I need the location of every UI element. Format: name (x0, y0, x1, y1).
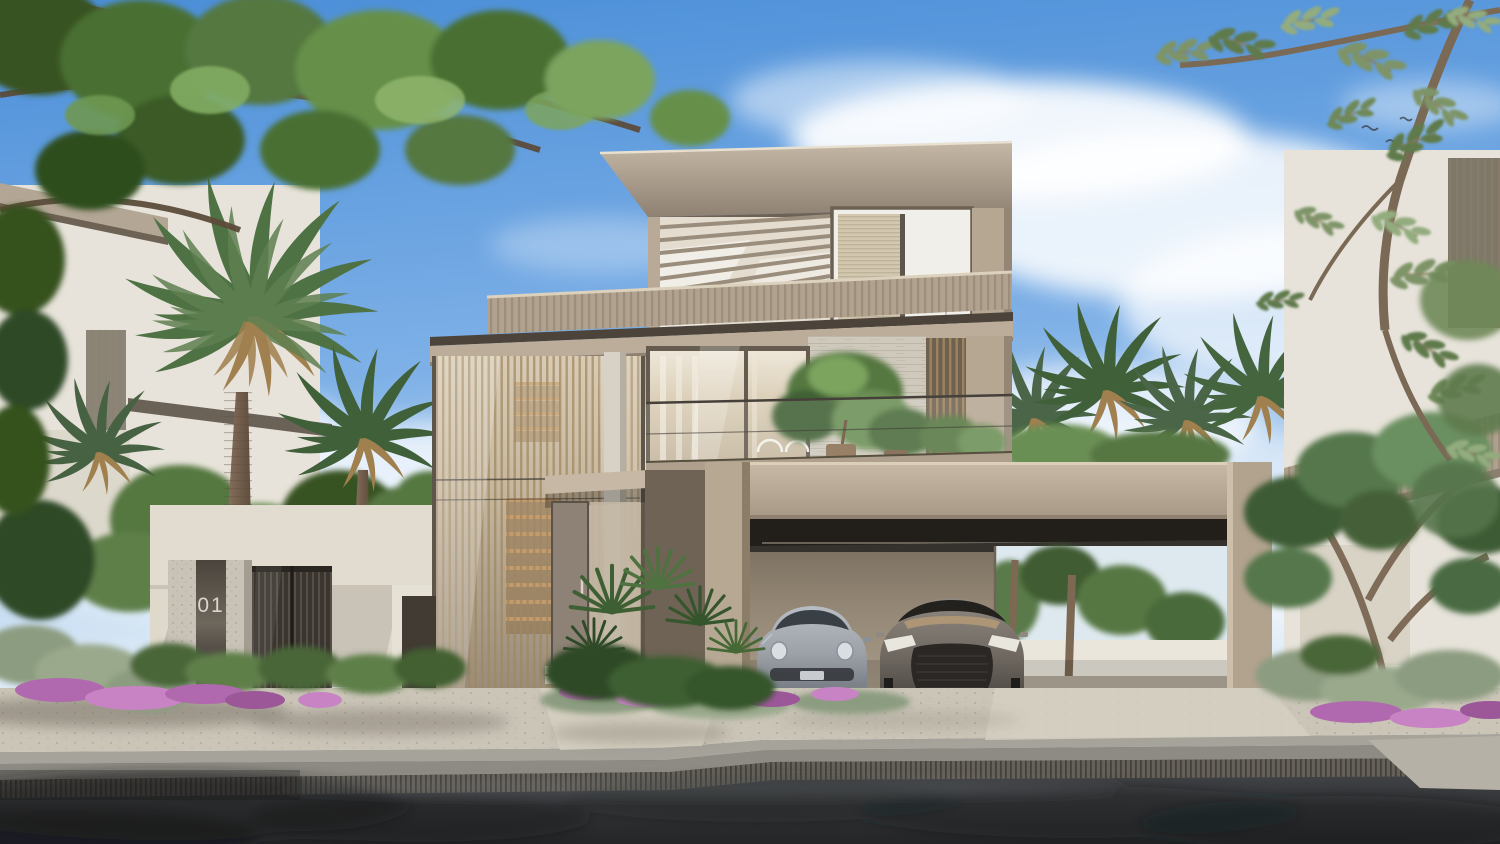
second-floor (646, 336, 1012, 474)
driveway (985, 688, 1310, 740)
house-number-label: 01 (197, 594, 224, 617)
villa-exterior-render: 01 (0, 0, 1500, 844)
scene: 01 (0, 0, 1500, 844)
carport (705, 462, 1272, 715)
